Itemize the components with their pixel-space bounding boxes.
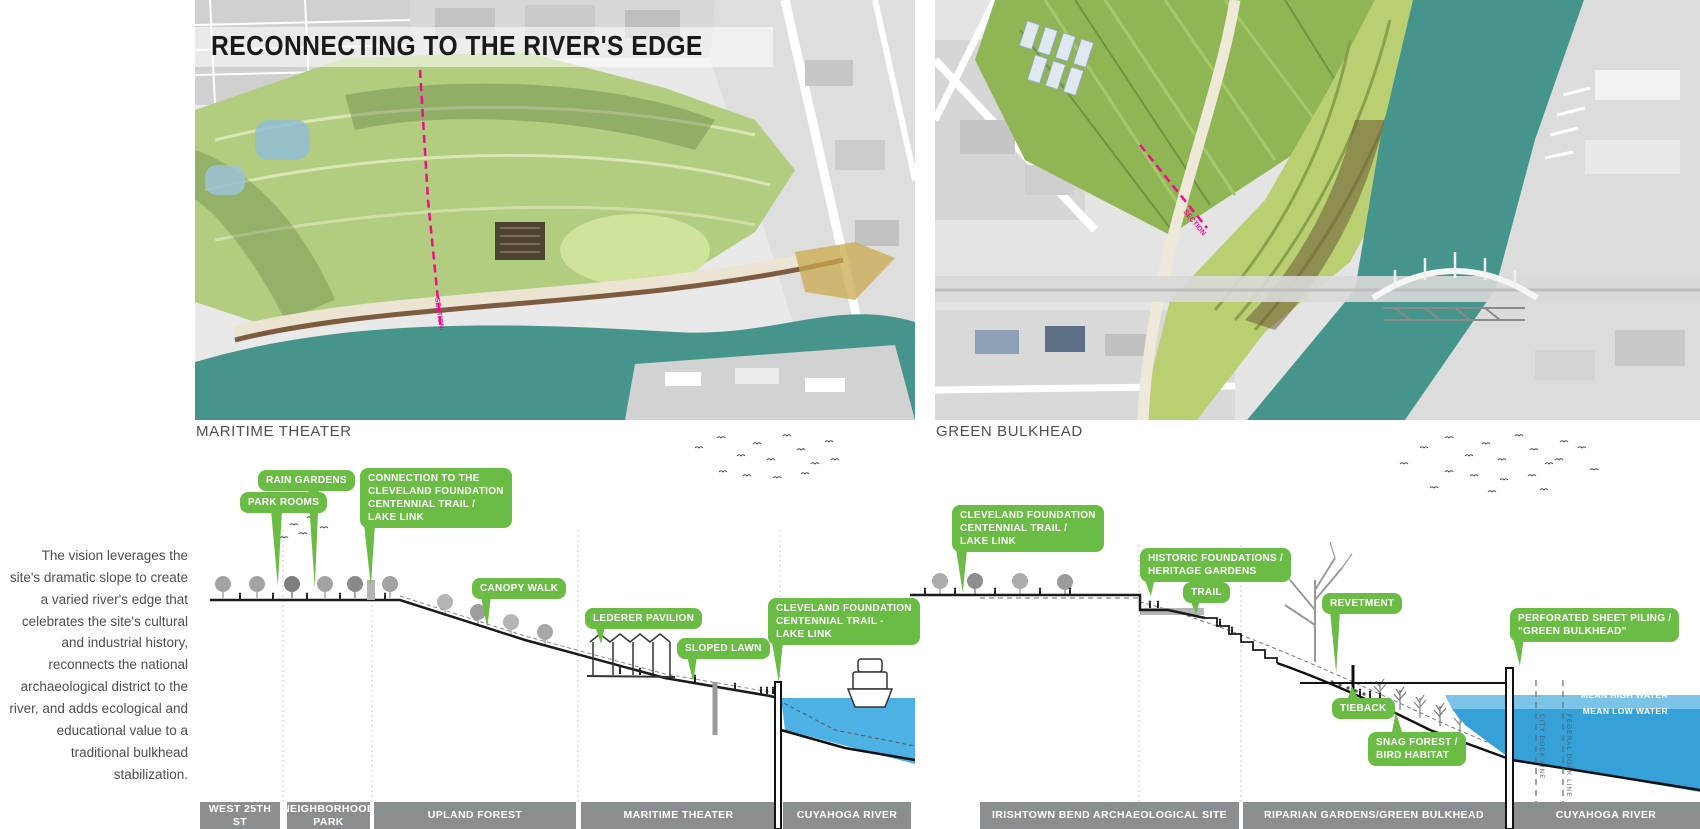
water-dashed-line (778, 700, 915, 746)
zone-neighborhood-park: NEIGHBORHOOD PARK (287, 802, 370, 829)
mean-high-water-label: MEAN HIGH WATER (1568, 690, 1668, 700)
river-water (781, 698, 915, 764)
people-figures (924, 588, 1381, 700)
slope-trees (437, 594, 553, 646)
callout-stem (481, 596, 491, 628)
zone-irishtown-bend: IRISHTOWN BEND ARCHAEOLOGICAL SITE (980, 802, 1239, 829)
zone-upland-forest: UPLAND FOREST (374, 802, 576, 829)
callout-lederer-pavilion: LEDERER PAVILION (585, 608, 702, 629)
upland-trees (932, 573, 1073, 596)
presentation-board: SECTION RECONNECTING TO THE RIVER'S EDGE (0, 0, 1700, 829)
ground-line (910, 595, 1205, 618)
callout-stem (772, 642, 783, 682)
revetment-stones (1330, 680, 1365, 695)
callout-stem (1348, 686, 1358, 698)
maritime-theater-section-diagram: WEST 25TH ST NEIGHBORHOOD PARK UPLAND FO… (195, 430, 915, 829)
mean-low-water-label: MEAN LOW WATER (1572, 706, 1668, 716)
intro-paragraph: The vision leverages the site's dramatic… (8, 545, 188, 785)
zone-maritime-theater: MARITIME THEATER (581, 802, 776, 829)
federal-dock-line-label: FEDERAL DOCK LINE (1565, 714, 1572, 798)
callout-sloped-lawn: SLOPED LAWN (677, 638, 770, 659)
callout-trail: TRAIL (1183, 582, 1230, 603)
callout-revetment: REVETMENT (1322, 593, 1402, 614)
callout-stem (1330, 611, 1340, 673)
callout-canopy-walk: CANOPY WALK (472, 578, 566, 599)
callout-stem (271, 510, 282, 586)
small-birds (280, 517, 328, 538)
riverbed-line (781, 730, 915, 760)
callout-historic-foundations: HISTORIC FOUNDATIONS / HERITAGE GARDENS (1140, 548, 1291, 582)
green-bulkhead-section-diagram: IRISHTOWN BEND ARCHAEOLOGICAL SITE RIPAR… (900, 430, 1700, 829)
zone-riparian-gardens: RIPARIAN GARDENS/GREEN BULKHEAD (1243, 802, 1505, 829)
water-low-body (1452, 709, 1700, 792)
zone-west-25th-st: WEST 25TH ST (200, 802, 280, 829)
callout-stem (364, 524, 375, 586)
zone-cuyahoga-river: CUYAHOGA RIVER (783, 802, 911, 829)
maritime-theater-aerial-image: SECTION RECONNECTING TO THE RIVER'S EDGE (195, 0, 915, 420)
birds-flock (695, 435, 839, 478)
callout-stem (1513, 638, 1524, 666)
boat (848, 659, 892, 707)
callout-centennial-trail-lake-link: CLEVELAND FOUNDATION CENTENNIAL TRAIL / … (952, 505, 1104, 552)
birds-flock (1400, 435, 1598, 492)
slope-dashed-line (1140, 602, 1510, 752)
callout-park-rooms: PARK ROOMS (240, 492, 327, 513)
stairs (1205, 618, 1277, 663)
callout-perforated-sheet-piling: PERFORATED SHEET PILING / "GREEN BULKHEA… (1510, 608, 1679, 642)
city-dock-line-label: CITY DOCK LINE (1538, 714, 1545, 780)
aerial-right-art: SECTION (935, 0, 1700, 420)
callout-stem (687, 656, 697, 682)
zone-cuyahoga-river: CUYAHOGA RIVER (1512, 802, 1700, 829)
callout-connection-centennial-trail: CONNECTION TO THE CLEVELAND FOUNDATION C… (360, 468, 512, 528)
callout-rain-gardens: RAIN GARDENS (258, 470, 355, 491)
zone-guide-lines (283, 530, 780, 802)
green-bulkhead-aerial-image: SECTION (935, 0, 1700, 420)
callout-stem (956, 549, 967, 593)
callout-snag-forest: SNAG FOREST / BIRD HABITAT (1368, 732, 1466, 766)
callout-centennial-trail-lake-link: CLEVELAND FOUNDATION CENTENNIAL TRAIL - … (768, 598, 920, 645)
callout-tieback: TIEBACK (1332, 698, 1395, 719)
page-title: RECONNECTING TO THE RIVER'S EDGE (211, 30, 703, 62)
